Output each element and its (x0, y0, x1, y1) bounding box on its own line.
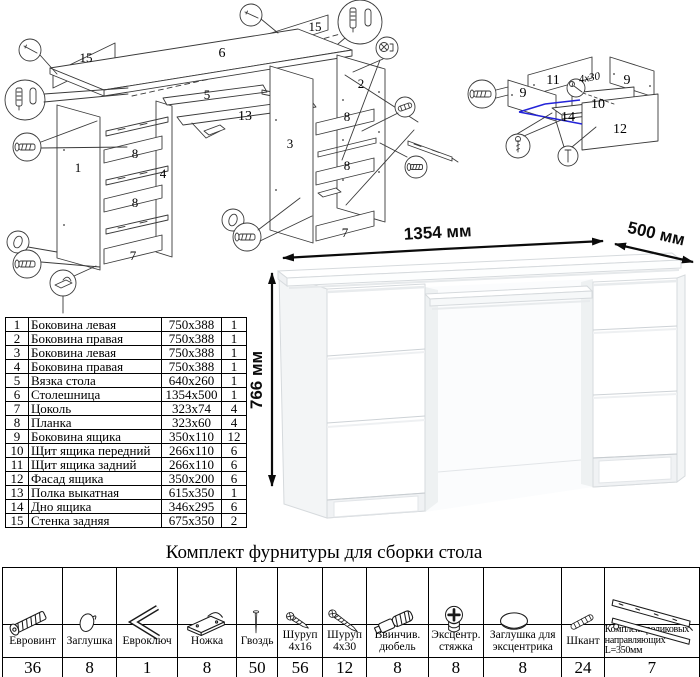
part-number: 6 (6, 388, 29, 402)
part-label-4: 4 (160, 166, 167, 181)
hardware-qty: 8 (484, 657, 562, 677)
callout-euroscrew-drawer (468, 80, 496, 108)
part-size: 266x110 (162, 458, 222, 472)
part-label-13: 13 (238, 109, 252, 124)
screw-size-annotation: 4x30 (578, 70, 602, 86)
part-qty: 2 (222, 514, 247, 528)
part-name: Дно ящика (29, 500, 162, 514)
part-qty: 1 (222, 388, 247, 402)
table-row: 7Цоколь323x744 (6, 402, 247, 416)
hardware-qty: 8 (178, 657, 237, 677)
part-size: 750x388 (162, 360, 222, 374)
part-label-9b: 9 (520, 86, 527, 101)
part-qty: 1 (222, 346, 247, 360)
part-number: 8 (6, 416, 29, 430)
part-qty: 1 (222, 332, 247, 346)
part-qty: 4 (222, 402, 247, 416)
part-number: 3 (6, 346, 29, 360)
part-qty: 6 (222, 458, 247, 472)
drawer-slides-icon (604, 568, 699, 625)
part-qty: 6 (222, 500, 247, 514)
depth-dimension-label: 500 мм (626, 218, 687, 250)
table-row: 3Боковина левая750x3881 (6, 346, 247, 360)
part-number: 11 (6, 458, 29, 472)
hardware-qty: 8 (367, 657, 428, 677)
foot-icon (178, 568, 237, 625)
part-name: Вязка стола (29, 374, 162, 388)
part-label-6: 6 (219, 46, 226, 61)
part-label-8c: 8 (344, 109, 351, 124)
callout-euroscrew (13, 133, 41, 161)
left-pedestal (327, 284, 425, 518)
part-qty: 1 (222, 360, 247, 374)
part-qty: 6 (222, 472, 247, 486)
table-row: 11Щит ящика задний266x1106 (6, 458, 247, 472)
right-pedestal (593, 278, 677, 487)
table-row: 2Боковина правая750x3881 (6, 332, 247, 346)
part-name: Столешница (29, 388, 162, 402)
part-number: 12 (6, 472, 29, 486)
callout-dowel-sleeve (5, 80, 45, 120)
cam-lock-icon (428, 568, 484, 625)
part-size: 750x388 (162, 318, 222, 332)
part-size: 675x350 (162, 514, 222, 528)
part-label-11: 11 (546, 73, 559, 88)
part-number: 13 (6, 486, 29, 500)
table-row: 8Планка323x604 (6, 416, 247, 430)
part-number: 7 (6, 402, 29, 416)
wood-dowel-icon (562, 568, 605, 625)
table-row: 6Столешница1354x5001 (6, 388, 247, 402)
cam-cap-icon (484, 568, 562, 625)
hardware-kit-title: Комплект фурнитуры для сборки стола (0, 542, 648, 564)
part-size: 640x260 (162, 374, 222, 388)
part-label-1: 1 (75, 160, 82, 175)
part-size: 1354x500 (162, 388, 222, 402)
part-name: Планка (29, 416, 162, 430)
part-qty: 1 (222, 486, 247, 500)
callout-nail (19, 39, 41, 61)
hardware-table: Евровинт Заглушка Евроключ Ножка Гвоздь … (2, 567, 700, 677)
desk-dimensions-figure: 1354 мм 500 мм 766 мм (248, 210, 700, 545)
hardware-qty: 1 (116, 657, 177, 677)
part-label-10: 10 (591, 97, 605, 112)
hardware-qty: 12 (322, 657, 367, 677)
table-row: 15Стенка задняя675x3502 (6, 514, 247, 528)
part-label-9a: 9 (624, 73, 631, 88)
part-name: Полка выкатная (29, 486, 162, 500)
table-row: 9Боковина ящика350x11012 (6, 430, 247, 444)
hardware-qty-row: 36 8 1 8 50 56 12 8 8 8 24 7 (3, 657, 700, 677)
part-number: 1 (6, 318, 29, 332)
hardware-qty: 24 (562, 657, 605, 677)
hex-key-icon (116, 568, 177, 625)
table-row: 13Полка выкатная615x3501 (6, 486, 247, 500)
part-size: 750x388 (162, 346, 222, 360)
part-label-2: 2 (358, 76, 365, 91)
part-number: 2 (6, 332, 29, 346)
screw-short-icon (278, 568, 323, 625)
part-size: 266x110 (162, 444, 222, 458)
part-label-7a: 7 (130, 248, 137, 263)
hardware-qty: 7 (604, 657, 699, 677)
part-number: 10 (6, 444, 29, 458)
part-size: 750x388 (162, 332, 222, 346)
width-dimension-label: 1354 мм (403, 221, 472, 244)
part-label-3: 3 (287, 136, 294, 151)
euro-screw-icon (3, 568, 63, 625)
table-row: 5Вязка стола640x2601 (6, 374, 247, 388)
part-size: 323x74 (162, 402, 222, 416)
table-row: 4Боковина правая750x3881 (6, 360, 247, 374)
part-size: 615x350 (162, 486, 222, 500)
part-label-14: 14 (561, 110, 575, 125)
cap-icon (63, 568, 117, 625)
screw-long-icon (322, 568, 367, 625)
part-size: 346x295 (162, 500, 222, 514)
part-label-15: 15 (80, 50, 93, 65)
part-name: Стенка задняя (29, 514, 162, 528)
part-number: 14 (6, 500, 29, 514)
nail-icon (236, 568, 278, 625)
part-name: Щит ящика передний (29, 444, 162, 458)
desk-illustration (278, 253, 685, 518)
part-label-5: 5 (204, 87, 211, 102)
hardware-qty: 36 (3, 657, 63, 677)
table-row: 14Дно ящика346x2956 (6, 500, 247, 514)
height-dimension-label: 766 мм (248, 351, 266, 409)
right-exploded-diagram: 11 9 9 10 14 12 4x30 (468, 57, 658, 166)
table-row: 1Боковина левая750x3881 (6, 318, 247, 332)
part-qty: 6 (222, 444, 247, 458)
part-qty: 1 (222, 318, 247, 332)
table-row: 12Фасад ящика350x2006 (6, 472, 247, 486)
hardware-icons-row (3, 568, 700, 625)
part-qty: 4 (222, 416, 247, 430)
part-size: 350x200 (162, 472, 222, 486)
part-label-15b: 15 (309, 19, 322, 34)
part-label-8d: 8 (344, 158, 351, 173)
parts-table: 1Боковина левая750x3881 2Боковина правая… (5, 317, 247, 528)
part-name: Цоколь (29, 402, 162, 416)
part-number: 5 (6, 374, 29, 388)
callout-euroscrew-2 (13, 250, 41, 278)
part-number: 15 (6, 514, 29, 528)
part-size: 350x110 (162, 430, 222, 444)
dowel-screw-icon (367, 568, 428, 625)
part-number: 4 (6, 360, 29, 374)
part-name: Фасад ящика (29, 472, 162, 486)
hardware-qty: 8 (63, 657, 117, 677)
part-label-8b: 8 (132, 195, 139, 210)
part-qty: 1 (222, 374, 247, 388)
part-name: Боковина правая (29, 332, 162, 346)
part-name: Боковина правая (29, 360, 162, 374)
part-size: 323x60 (162, 416, 222, 430)
assembly-sheet: 15 6 15 1 8 4 8 7 5 13 3 2 8 8 7 (0, 0, 700, 677)
table-row: 10Щит ящика передний266x1106 (6, 444, 247, 458)
part-label-8a: 8 (132, 146, 139, 161)
part-qty: 12 (222, 430, 247, 444)
callout-dowel-sleeve-top (338, 0, 382, 44)
part-name: Боковина левая (29, 346, 162, 360)
part-label-12: 12 (613, 122, 627, 137)
hardware-qty: 8 (428, 657, 484, 677)
part-name: Боковина левая (29, 318, 162, 332)
part-number: 9 (6, 430, 29, 444)
hardware-qty: 56 (278, 657, 323, 677)
part-name: Щит ящика задний (29, 458, 162, 472)
hardware-qty: 50 (236, 657, 278, 677)
part-name: Боковина ящика (29, 430, 162, 444)
